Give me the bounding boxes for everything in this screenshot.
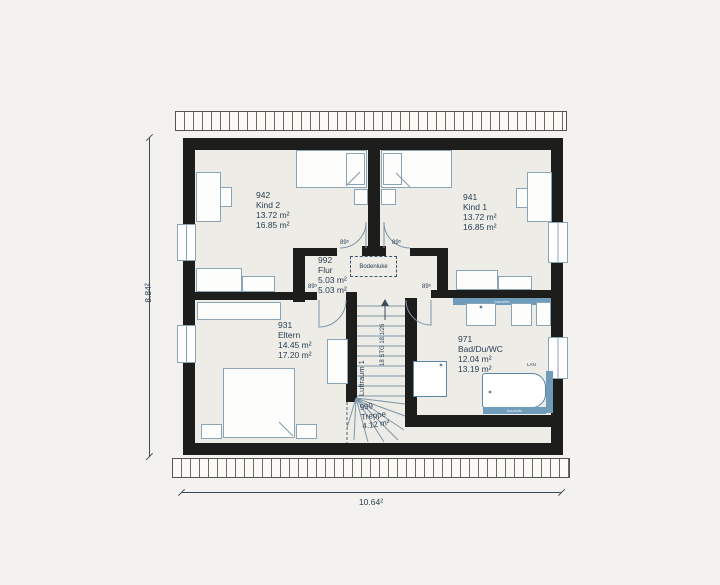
- room-area-living: 5.03 m²: [318, 275, 347, 285]
- luftraum-label: Luftraum 1: [357, 340, 366, 396]
- room-area-living: 14.45 m²: [278, 340, 312, 350]
- bed-fold-kind2: [346, 172, 360, 186]
- room-area-floor: 16.85 m²: [256, 220, 290, 230]
- room-name: Eltern: [278, 330, 312, 340]
- room-area-living: 13.72 m²: [256, 210, 290, 220]
- room-number: 942: [256, 190, 290, 200]
- room-label-treppe: 999 Treppe 4.12 m²: [359, 399, 390, 431]
- faucet-dot-washbasin: [480, 306, 483, 309]
- bed-fold-eltern: [279, 422, 293, 436]
- room-area-floor: 5.03 m²: [318, 285, 347, 295]
- room-area-floor: 16.85 m²: [463, 222, 497, 232]
- room-number: 931: [278, 320, 312, 330]
- room-area-living: 13.72 m²: [463, 212, 497, 222]
- room-number: 971: [458, 334, 503, 344]
- room-area-floor: 13.19 m²: [458, 364, 503, 374]
- stairs-spec-label: 18 STG 18.1/26: [380, 306, 386, 366]
- door-width-label-eltern: 89⁵: [308, 284, 317, 290]
- room-label-bad: 971 Bad/Du/WC 12.04 m² 13.19 m²: [458, 334, 503, 374]
- door-arc-eltern: [319, 300, 346, 327]
- door-width-label-kind1: 89⁵: [392, 240, 401, 246]
- room-area-floor: 17.20 m²: [278, 350, 312, 360]
- floor-plan: 8.84² 10.64² bauseits: [0, 0, 720, 585]
- room-label-eltern: 931 Eltern 14.45 m² 17.20 m²: [278, 320, 312, 360]
- bodenluke-label: Bodenluke: [359, 264, 387, 270]
- faucet-dot-shower: [440, 364, 443, 367]
- plan-linework: [0, 0, 720, 585]
- door-width-label-bath: 89⁵: [422, 284, 431, 290]
- lan-label: LAN: [527, 362, 536, 367]
- room-name: Bad/Du/WC: [458, 344, 503, 354]
- room-label-kind1: 941 Kind 1 13.72 m² 16.85 m²: [463, 192, 497, 232]
- door-arc-bath: [406, 300, 431, 325]
- room-label-kind2: 942 Kind 2 13.72 m² 16.85 m²: [256, 190, 290, 230]
- stair-direction-arrow: [381, 299, 389, 306]
- door-width-label-kind2: 89⁵: [340, 240, 349, 246]
- room-number: 941: [463, 192, 497, 202]
- room-name: Kind 2: [256, 200, 290, 210]
- faucet-dot-bathtub: [489, 391, 492, 394]
- room-number: 992: [318, 255, 347, 265]
- room-name: Flur: [318, 265, 347, 275]
- room-name: Kind 1: [463, 202, 497, 212]
- bodenluke-box: Bodenluke: [350, 256, 397, 277]
- room-area-living: 12.04 m²: [458, 354, 503, 364]
- bed-fold-kind1: [396, 173, 410, 187]
- room-label-flur: 992 Flur 5.03 m² 5.03 m²: [318, 255, 347, 295]
